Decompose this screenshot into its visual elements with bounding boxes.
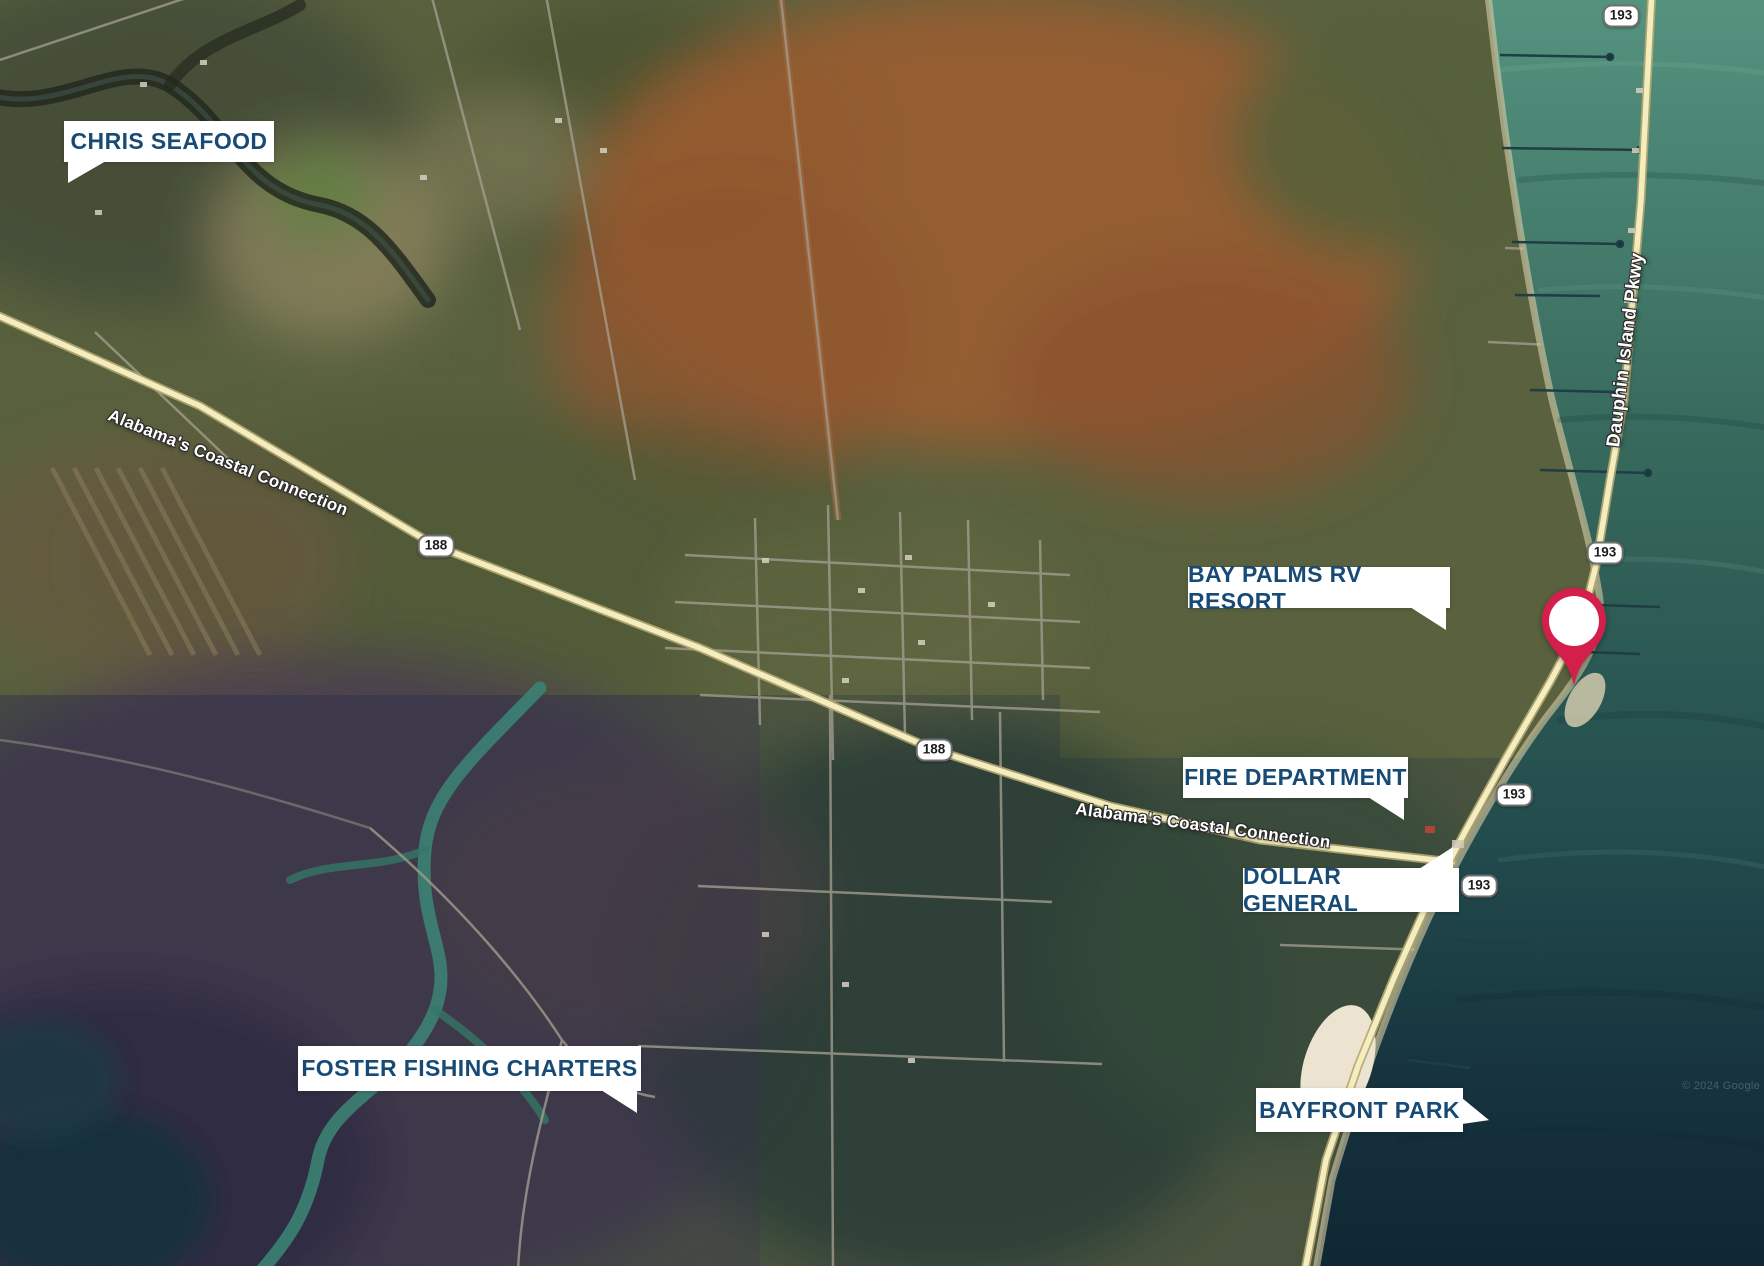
route-shield-193-fire: 193 — [1496, 784, 1533, 807]
callout-label: BAY PALMS RV RESORT — [1188, 561, 1450, 615]
map-copyright: © 2024 Google — [1682, 1080, 1760, 1092]
satellite-map[interactable]: Alabama's Coastal Connection Alabama's C… — [0, 0, 1764, 1266]
callout-chris-seafood[interactable]: CHRIS SEAFOOD — [64, 121, 274, 162]
callout-bayfront-park[interactable]: BAYFRONT PARK — [1256, 1088, 1463, 1132]
callout-label: BAYFRONT PARK — [1259, 1097, 1460, 1124]
route-shield-188-east: 188 — [916, 739, 953, 762]
route-shield-193-south: 193 — [1461, 875, 1498, 898]
satellite-imagery — [0, 0, 1764, 1266]
callout-label: CHRIS SEAFOOD — [71, 128, 268, 155]
callout-foster-fishing-charters[interactable]: FOSTER FISHING CHARTERS — [298, 1046, 641, 1091]
location-pin-icon[interactable] — [1540, 586, 1608, 694]
route-shield-193-mid: 193 — [1587, 542, 1624, 565]
callout-label: DOLLAR GENERAL — [1243, 863, 1459, 917]
callout-fire-department[interactable]: FIRE DEPARTMENT — [1183, 757, 1408, 798]
route-shield-188-west: 188 — [418, 535, 455, 558]
callout-bay-palms-rv-resort[interactable]: BAY PALMS RV RESORT — [1188, 567, 1450, 608]
route-shield-193-top: 193 — [1603, 5, 1640, 28]
callout-label: FOSTER FISHING CHARTERS — [301, 1055, 637, 1082]
callout-dollar-general[interactable]: DOLLAR GENERAL — [1243, 868, 1459, 912]
callout-label: FIRE DEPARTMENT — [1184, 764, 1407, 791]
